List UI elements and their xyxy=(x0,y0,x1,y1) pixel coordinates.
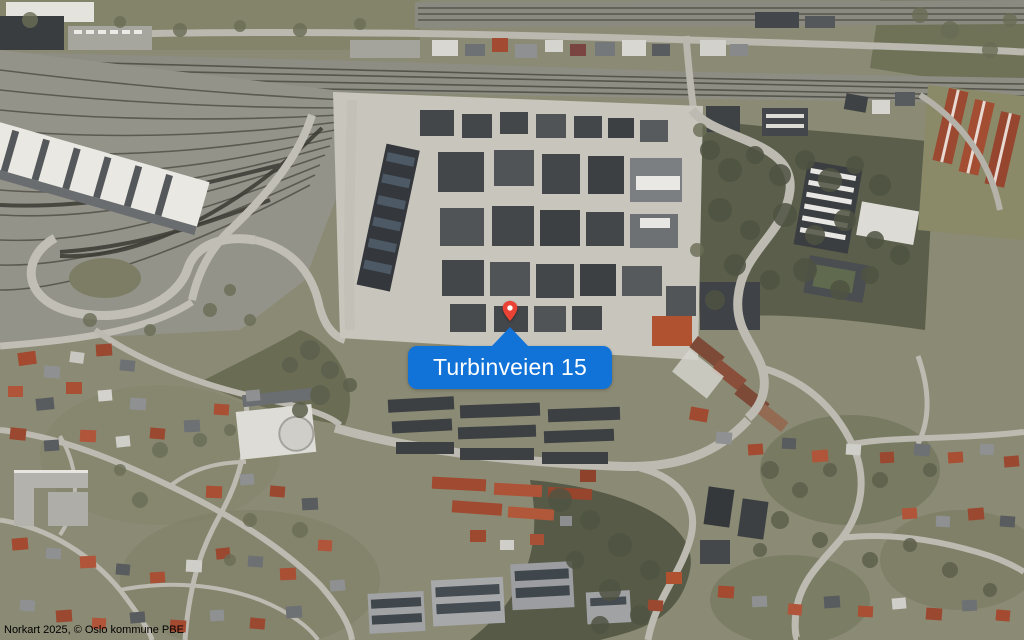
pin-dot xyxy=(507,305,512,310)
address-callout[interactable]: Turbinveien 15 xyxy=(408,346,612,389)
address-callout-label: Turbinveien 15 xyxy=(433,354,587,381)
map-attribution: Norkart 2025, © Oslo kommune PBE xyxy=(4,624,184,637)
callout-arrow xyxy=(491,327,529,347)
map-viewport: Turbinveien 15 Norkart 2025, © Oslo komm… xyxy=(0,0,1024,640)
pin-body xyxy=(503,301,518,321)
location-pin-icon[interactable] xyxy=(501,299,519,323)
